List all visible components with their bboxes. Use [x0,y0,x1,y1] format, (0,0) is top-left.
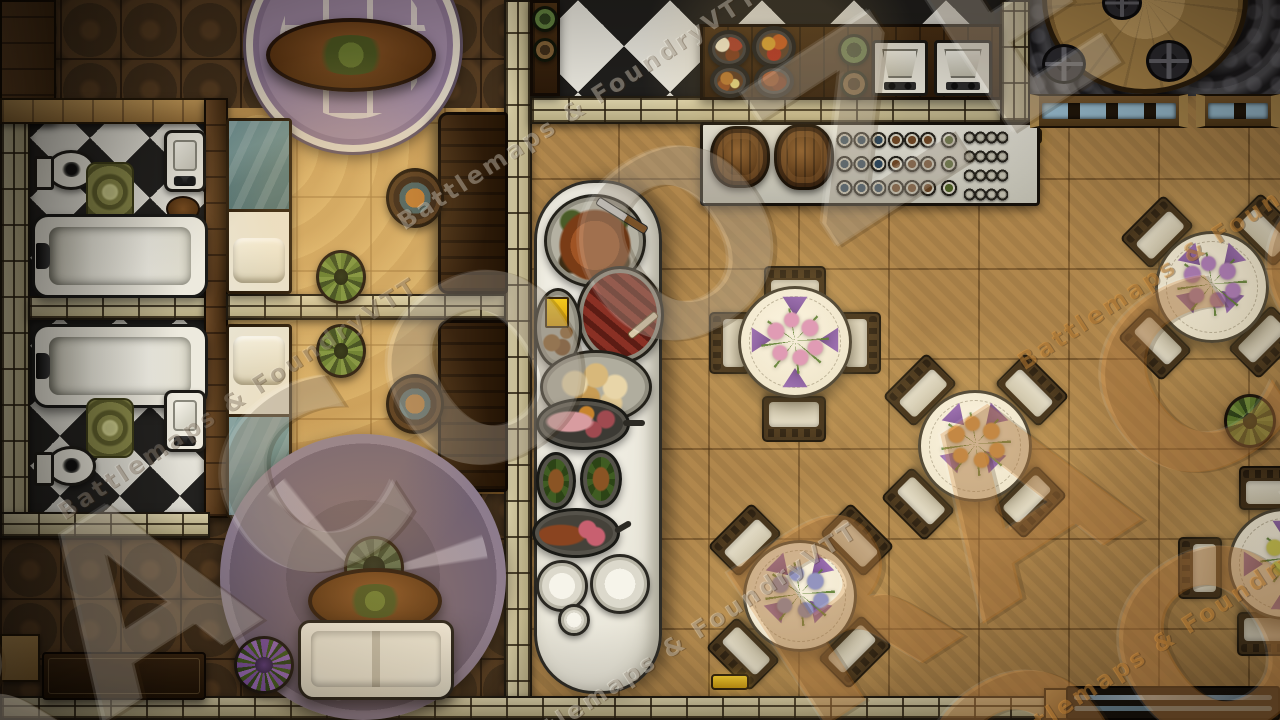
wall-bathroom2-bottom-brick [0,512,210,538]
map-objects-layer [0,0,1280,720]
mug-rack-brown [888,128,936,202]
bedroom-chair-2 [386,374,444,434]
wall-left-brick [0,122,30,516]
counter-jar-1 [838,34,870,66]
window-bench-1 [1030,94,1188,128]
pan-charcuterie [536,398,630,450]
parlor-table [266,18,436,92]
bedroom-desk-1 [438,112,508,294]
storage-chest [42,652,206,700]
bed-plant-1 [316,250,366,304]
tray-roast-greens-1 [536,452,576,510]
t1-flowers [761,308,829,374]
wall-bathroom1-top-beam [0,98,208,124]
t5-chair-w [1178,537,1222,599]
hall-lamp [711,674,749,690]
mug-rack-green [938,128,962,202]
sink-unit-2 [934,40,992,96]
wall-smokeroom-brick [1000,0,1030,122]
barrel-2 [774,124,834,190]
wall-bathrooms-divider-brick [28,296,210,320]
bath-sink-1 [164,130,206,192]
t2-flowers [941,412,1011,476]
lounge-sofa [298,620,454,700]
barrel-1 [710,126,770,188]
sink-unit-1 [872,40,928,96]
counter-jar-2 [840,70,868,98]
pan-stew [710,64,750,98]
wall-bath-bedroom-divider-wood [204,98,228,518]
t5-chair-n [1239,466,1280,510]
plate-stack-2 [590,554,650,614]
plate-stack-3 [558,604,590,636]
left-crate [0,634,40,682]
pan-fruit [752,26,796,68]
bathtub-1 [32,214,208,298]
bedroom-chair-1 [386,168,444,228]
hall-plant [1224,394,1276,448]
wall-bedrooms-divider-brick [226,294,508,320]
radiator-post [1044,688,1068,720]
t1-chair-s [762,396,826,442]
wall-kitchen-brick [530,96,1008,124]
bath-rug-2 [86,398,134,458]
bath-sink-2 [164,390,206,452]
bath-rug-1 [86,162,134,222]
platter-ham [532,508,620,558]
toilet-2 [46,446,96,486]
window-bench-2 [1196,94,1280,128]
bed-plant-2 [316,324,366,378]
glass-rack [964,128,1008,204]
stone-plate-1 [1042,44,1086,84]
t4-flowers [1177,252,1247,316]
wall-center-brick [504,0,532,720]
radiator-bench [1066,686,1280,720]
battlemap-stage: RACOOZE RACOOZE RACOOZE Battlemaps & Fou… [0,0,1280,720]
shelf-jar-1 [532,6,558,32]
bed-1 [226,118,292,294]
lavender-plant [234,636,294,694]
plate-stack-1 [536,560,588,612]
tray-roast-greens-2 [580,450,622,508]
pan-beans [754,64,794,98]
t3-flowers [765,562,835,626]
mug-rack-blue [836,128,886,202]
stone-plate-2 [1146,40,1192,82]
pan-eggs-sausage [708,30,750,68]
shelf-jar-2 [533,38,557,62]
